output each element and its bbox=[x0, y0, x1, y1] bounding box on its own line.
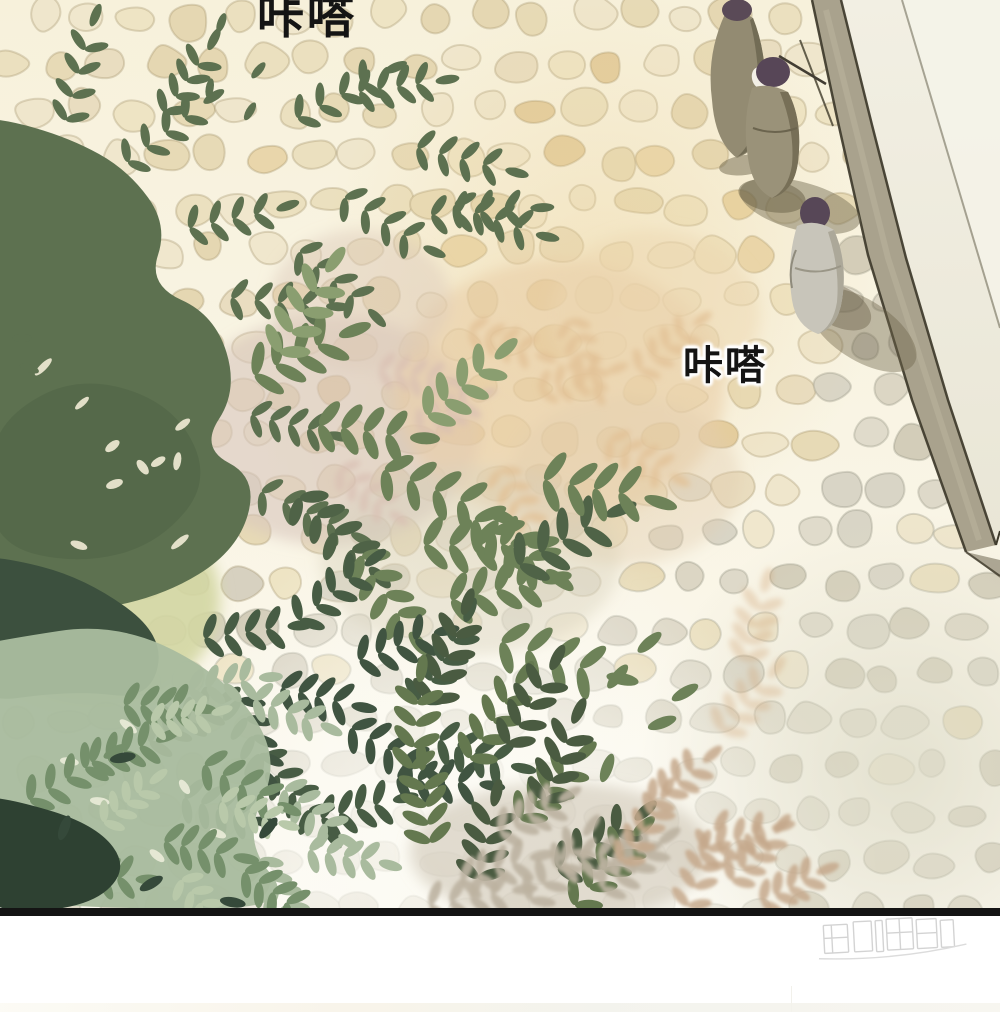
panel-gutter bbox=[0, 916, 1000, 1012]
courtyard-illustration bbox=[0, 0, 1000, 908]
watermark-logo bbox=[812, 916, 972, 964]
sfx-kata-middle: 咔嗒 bbox=[683, 346, 767, 386]
sfx-kata-top: 咔嗒 bbox=[257, 0, 357, 41]
comic-panel: 咔嗒 咔嗒 bbox=[0, 0, 1000, 916]
comic-page: 咔嗒 咔嗒 bbox=[0, 0, 1000, 1012]
next-panel-edge bbox=[0, 1003, 1000, 1012]
